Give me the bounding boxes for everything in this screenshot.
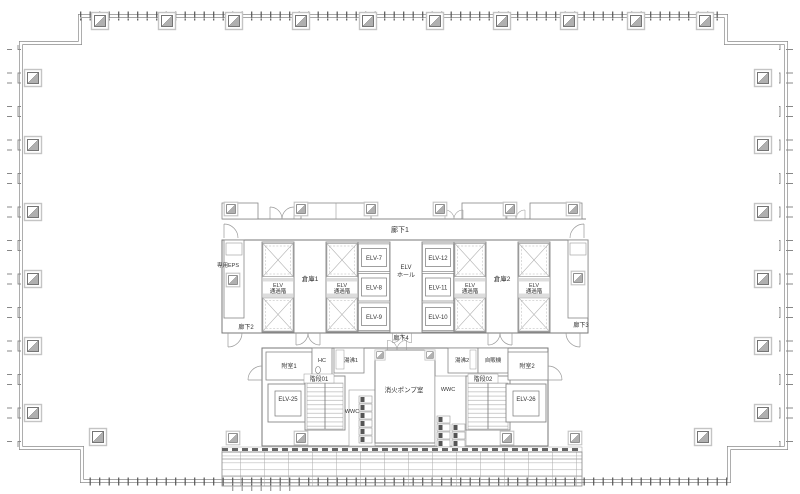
label-corridor-2: 廊下2 [238, 323, 254, 331]
column-symbol [494, 13, 511, 30]
elevator-pass-bank-c: ELV 通過階 [454, 242, 486, 332]
elevator-pass-bank-a: ELV 通過階 [262, 242, 294, 332]
column-symbol [360, 13, 377, 30]
sawtooth-wall-left [7, 45, 21, 447]
elevator-26: ELV-26 [506, 384, 546, 422]
wc-right: WWC [435, 376, 466, 447]
column-symbol [226, 13, 243, 30]
label-fire-pump-room: 消火ポンプ室 [385, 385, 424, 394]
label-vending-machine: 自販機 [485, 356, 502, 364]
toilet-stall-icon [437, 440, 450, 447]
door-arc [248, 366, 262, 380]
floor-plan-screenshot: 廊下1 専用EPS ELV 通過階 倉庫1 ELV 通過階 [0, 0, 800, 494]
elevator-bank-789: ELV-7 ELV-8 ELV-9 [358, 242, 390, 332]
label-wwc-left: WWC [345, 409, 359, 415]
column-symbol [294, 202, 308, 216]
toilet-stall-icon [359, 404, 372, 411]
elevator-pass-bank-d: ELV 通過階 [518, 242, 550, 332]
column-symbol [224, 202, 238, 216]
label-vestibule-1: 附室1 [281, 362, 297, 370]
label-elv-9: ELV-9 [366, 315, 383, 321]
label-storage-1: 倉庫1 [302, 274, 319, 283]
column-symbol [628, 13, 645, 30]
elevator-bank-121110: ELV-12 ELV-11 ELV-10 [422, 242, 454, 332]
label-hc: HC [318, 358, 326, 364]
sawtooth-wall-right [779, 45, 793, 447]
column-symbol [755, 405, 772, 422]
column-symbol [571, 271, 585, 285]
column-symbol [566, 202, 580, 216]
column-symbol [92, 13, 109, 30]
elevator-pass-bank-b: ELV 通過階 [326, 242, 358, 332]
column-symbol [25, 338, 42, 355]
label-elv-pass: ELV [465, 283, 475, 289]
label-elv-26: ELV-26 [516, 397, 536, 403]
column-symbol [425, 350, 435, 360]
door-arc [270, 207, 294, 219]
label-elv-pass: 通過階 [462, 287, 479, 295]
column-symbol [375, 350, 385, 360]
column-symbol [427, 13, 444, 30]
door-arc [296, 333, 320, 345]
door-arc [445, 210, 463, 219]
column-symbol [293, 13, 310, 30]
column-symbol [25, 405, 42, 422]
label-corridor-4: 廊下4 [393, 334, 409, 342]
door-arc [488, 333, 512, 345]
column-symbol [561, 13, 578, 30]
label-stair-01: 階段01 [310, 375, 329, 383]
label-elv-hall: ELV [401, 265, 412, 271]
column-symbol [755, 70, 772, 87]
label-elv-10: ELV-10 [428, 315, 448, 321]
label-elv-pass: ELV [273, 283, 283, 289]
elevator-25: ELV-25 [268, 384, 308, 422]
column-symbol [364, 202, 378, 216]
label-elv-7: ELV-7 [366, 256, 383, 262]
label-corridor-1: 廊下1 [391, 225, 409, 234]
toilet-stall-icon [452, 424, 465, 431]
label-hot-water-1: 湯沸1 [344, 356, 358, 364]
label-stair-02: 階段02 [474, 375, 493, 383]
toilet-stall-icon [359, 396, 372, 403]
toilet-stall-icon [359, 428, 372, 435]
toilet-stall-icon [452, 432, 465, 439]
column-symbol [90, 429, 107, 446]
label-storage-2: 倉庫2 [494, 274, 511, 283]
column-symbol [500, 431, 514, 445]
column-symbol [294, 431, 308, 445]
toilet-stall-icon [359, 412, 372, 419]
elevator-hall: ELV ホール [397, 265, 415, 279]
wc-left: WWC [345, 390, 375, 446]
label-elv-pass: 通過階 [334, 287, 351, 295]
south-grating-deck [222, 452, 582, 491]
label-elv-hall: ホール [397, 272, 415, 279]
column-symbol [755, 204, 772, 221]
fire-pump-room: 消火ポンプ室 [375, 340, 435, 443]
column-symbol [159, 13, 176, 30]
core-upper-band: 専用EPS ELV 通過階 倉庫1 ELV 通過階 ELV-7 ELV-8 EL [217, 224, 589, 347]
toilet-stall-icon [359, 420, 372, 427]
column-symbol [25, 137, 42, 154]
toilet-stall-icon [437, 424, 450, 431]
label-elv-11: ELV-11 [429, 286, 448, 292]
core-lower-band: 附室1 ELV-25 HC 湯沸1 階段01 WWC [226, 340, 582, 447]
label-hot-water-2: 湯沸2 [455, 356, 469, 364]
column-symbol [25, 70, 42, 87]
label-elv-25: ELV-25 [278, 397, 298, 403]
stair-01: 階段01 [304, 374, 345, 430]
column-symbol [697, 13, 714, 30]
toilet-stall-icon [437, 432, 450, 439]
column-symbol [755, 271, 772, 288]
column-symbol [226, 273, 240, 287]
column-symbol [25, 204, 42, 221]
floor-plan-canvas: 廊下1 専用EPS ELV 通過階 倉庫1 ELV 通過階 [0, 0, 800, 494]
column-symbol [695, 429, 712, 446]
label-vestibule-2: 附室2 [519, 362, 535, 370]
column-symbol [433, 202, 447, 216]
label-elv-pass: ELV [337, 283, 347, 289]
stair-02: 階段02 [466, 374, 510, 430]
core-top-strip: 廊下1 [222, 202, 586, 234]
label-elv-pass: 通過階 [526, 287, 543, 295]
label-corridor-3: 廊下3 [573, 321, 589, 329]
toilet-stall-icon [452, 440, 465, 447]
column-symbol [25, 271, 42, 288]
label-elv-pass: ELV [529, 283, 539, 289]
column-symbol [755, 338, 772, 355]
column-symbol [755, 137, 772, 154]
south-hatch-band [222, 447, 582, 452]
column-symbol [568, 431, 582, 445]
label-elv-8: ELV-8 [366, 286, 383, 292]
label-elv-pass: 通過階 [270, 287, 287, 295]
column-symbol [503, 202, 517, 216]
label-wwc-right: WWC [441, 387, 455, 393]
label-elv-12: ELV-12 [428, 256, 448, 262]
toilet-stall-icon [437, 416, 450, 423]
label-private-eps: 専用EPS [217, 261, 239, 269]
toilet-stall-icon [359, 436, 372, 443]
door-arc [548, 366, 562, 380]
column-symbol [226, 431, 240, 445]
